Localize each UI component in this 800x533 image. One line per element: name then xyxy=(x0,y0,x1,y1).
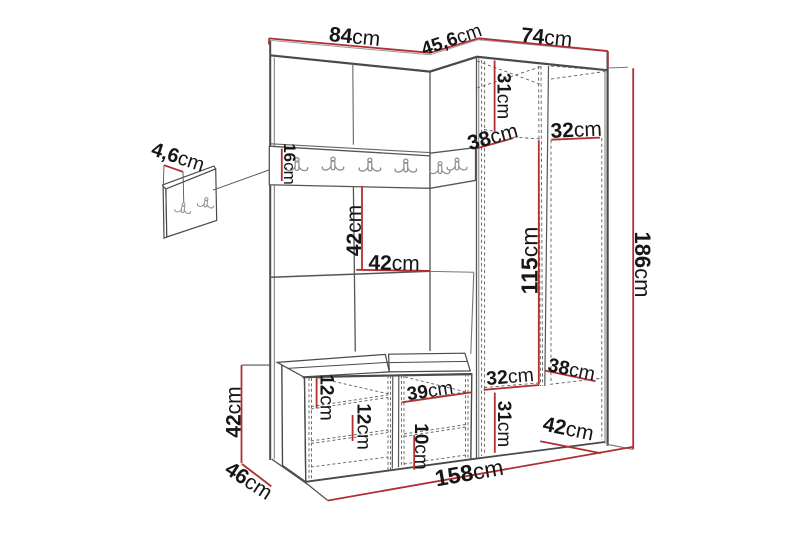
svg-text:31cm: 31cm xyxy=(493,73,514,119)
svg-text:186cm: 186cm xyxy=(630,231,655,297)
svg-text:16cm: 16cm xyxy=(280,143,299,185)
svg-text:32cm: 32cm xyxy=(550,118,602,143)
svg-text:10cm: 10cm xyxy=(410,423,431,469)
svg-text:31cm: 31cm xyxy=(493,401,514,447)
svg-text:115cm: 115cm xyxy=(516,227,542,295)
svg-text:42cm: 42cm xyxy=(223,386,246,437)
svg-text:12cm: 12cm xyxy=(316,374,337,420)
svg-text:12cm: 12cm xyxy=(352,403,373,449)
svg-text:32cm: 32cm xyxy=(485,364,534,390)
svg-text:42cm: 42cm xyxy=(368,252,420,276)
svg-text:42cm: 42cm xyxy=(343,205,366,256)
